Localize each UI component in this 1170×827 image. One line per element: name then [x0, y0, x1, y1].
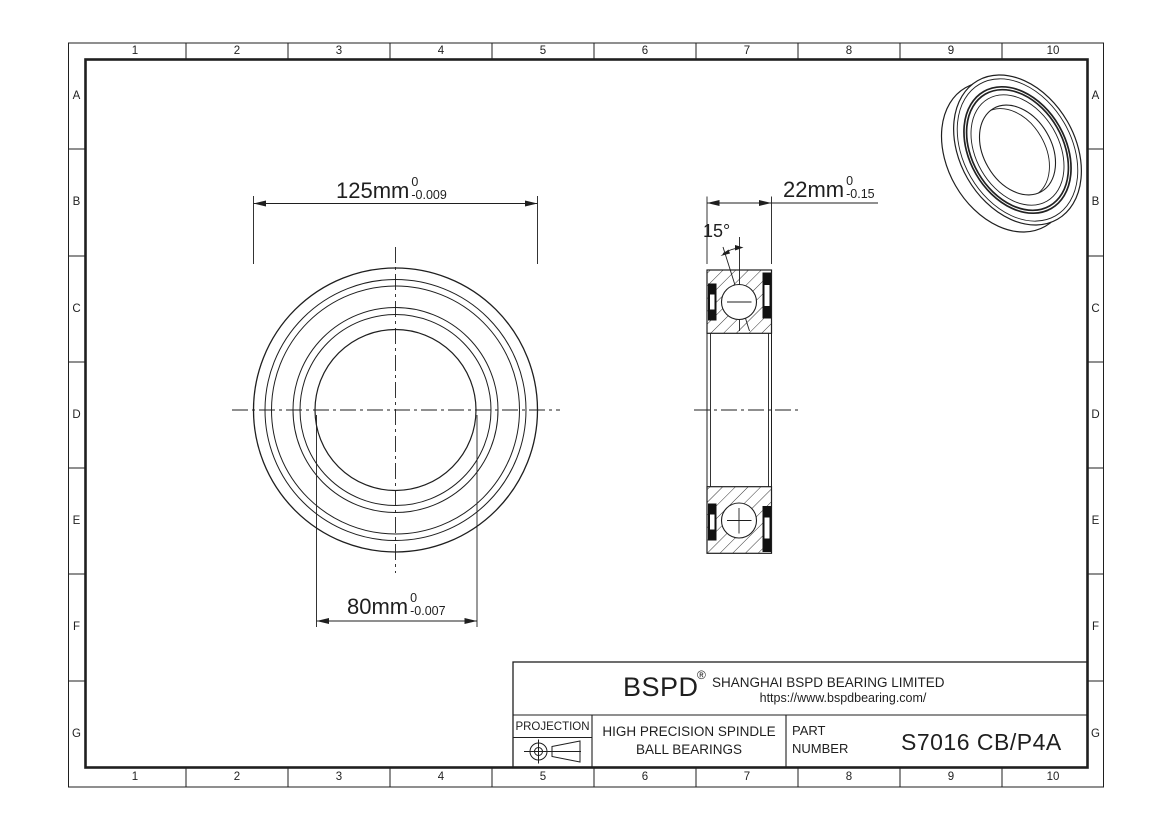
part-number-label-line1: PART [792, 724, 825, 737]
section-view [694, 270, 802, 553]
grid-col-label: 4 [390, 43, 492, 59]
seal-bottom-right [763, 506, 773, 552]
grid-row-label: A [68, 43, 85, 149]
grid-col-label: 3 [288, 768, 390, 786]
dim-tolerance: 0 -0.15 [846, 175, 875, 200]
grid-col-label: 1 [84, 43, 186, 59]
grid-col-label: 6 [594, 43, 696, 59]
grid-col-label: 2 [186, 768, 288, 786]
projection-label: PROJECTION [513, 721, 592, 733]
seal-top-right [763, 273, 773, 319]
grid-col-label: 5 [492, 43, 594, 59]
grid-col-label: 9 [900, 768, 1002, 786]
part-number-value: S7016 CB/P4A [901, 731, 1062, 753]
grid-row-label: A [1087, 43, 1104, 149]
grid-row-label: C [1087, 256, 1104, 362]
grid-col-label: 1 [84, 768, 186, 786]
front-view [232, 247, 560, 573]
dimension-width: 22mm 0 -0.15 [783, 175, 875, 200]
projection-symbol [524, 740, 581, 764]
dim-width-lines [707, 197, 878, 265]
grid-col-label: 4 [390, 768, 492, 786]
seal-top-left [708, 284, 717, 321]
grid-row-label: F [68, 574, 85, 680]
product-name-line2: BALL BEARINGS [592, 743, 786, 757]
grid-band-lines [69, 43, 1104, 787]
grid-row-label: B [68, 149, 85, 255]
company-website: https://www.bspdbearing.com/ [513, 692, 1170, 705]
dim-tolerance: 0 -0.009 [411, 176, 446, 201]
grid-row-label: E [68, 468, 85, 574]
grid-col-label: 3 [288, 43, 390, 59]
grid-col-label: 8 [798, 43, 900, 59]
bearing-3d [916, 52, 1108, 255]
grid-row-label: C [68, 256, 85, 362]
drawing-sheet: 1 2 3 4 5 6 7 8 9 10 1 2 3 4 5 6 7 8 9 1… [0, 0, 1170, 827]
part-number-label-line2: NUMBER [792, 742, 848, 755]
product-name-line1: HIGH PRECISION SPINDLE [592, 725, 786, 739]
grid-col-label: 5 [492, 768, 594, 786]
grid-row-label: E [1087, 468, 1104, 574]
dim-value: 80mm [347, 596, 408, 617]
tol-upper: 0 [846, 175, 853, 188]
front-view-centerlines [232, 247, 560, 573]
grid-row-label: F [1087, 574, 1104, 680]
grid-col-label: 8 [798, 768, 900, 786]
tol-upper: 0 [411, 176, 418, 189]
tol-lower: -0.009 [411, 189, 446, 202]
border-frame [69, 43, 1104, 787]
dim-tolerance: 0 -0.007 [410, 592, 445, 617]
grid-row-label: D [68, 362, 85, 468]
grid-col-label: 7 [696, 43, 798, 59]
grid-row-label: B [1087, 149, 1104, 255]
tol-upper: 0 [410, 592, 417, 605]
tol-lower: -0.007 [410, 605, 445, 618]
grid-row-label: G [68, 681, 85, 787]
seal-bottom-left [708, 504, 717, 541]
grid-col-label: 7 [696, 768, 798, 786]
company-name: SHANGHAI BSPD BEARING LIMITED [712, 676, 945, 690]
registered-trademark-icon: ® [697, 669, 706, 681]
grid-row-label: D [1087, 362, 1104, 468]
dimension-bore-diameter: 80mm 0 -0.007 [347, 592, 446, 617]
grid-col-label: 2 [186, 43, 288, 59]
tol-lower: -0.15 [846, 188, 875, 201]
dimension-outer-diameter: 125mm 0 -0.009 [336, 176, 447, 201]
grid-col-label: 6 [594, 768, 696, 786]
dim-value: 125mm [336, 180, 409, 201]
contact-angle-label: 15° [703, 222, 730, 240]
dim-value: 22mm [783, 179, 844, 200]
grid-col-label: 9 [900, 43, 1002, 59]
